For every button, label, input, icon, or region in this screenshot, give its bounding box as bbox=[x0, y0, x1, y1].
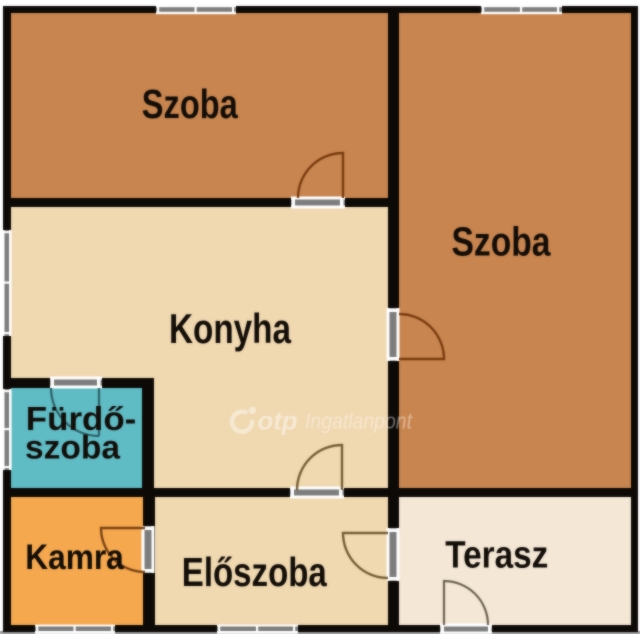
svg-text:Konyha: Konyha bbox=[169, 305, 292, 352]
svg-text:otp: otp bbox=[258, 406, 298, 436]
svg-text:szoba: szoba bbox=[25, 428, 121, 465]
svg-text:Kamra: Kamra bbox=[25, 538, 124, 577]
svg-text:Terasz: Terasz bbox=[445, 535, 548, 577]
svg-text:Ingatlanpont: Ingatlanpont bbox=[305, 409, 413, 434]
svg-text:Szoba: Szoba bbox=[452, 219, 552, 265]
svg-text:Előszoba: Előszoba bbox=[182, 549, 328, 595]
svg-text:Szoba: Szoba bbox=[142, 81, 239, 127]
